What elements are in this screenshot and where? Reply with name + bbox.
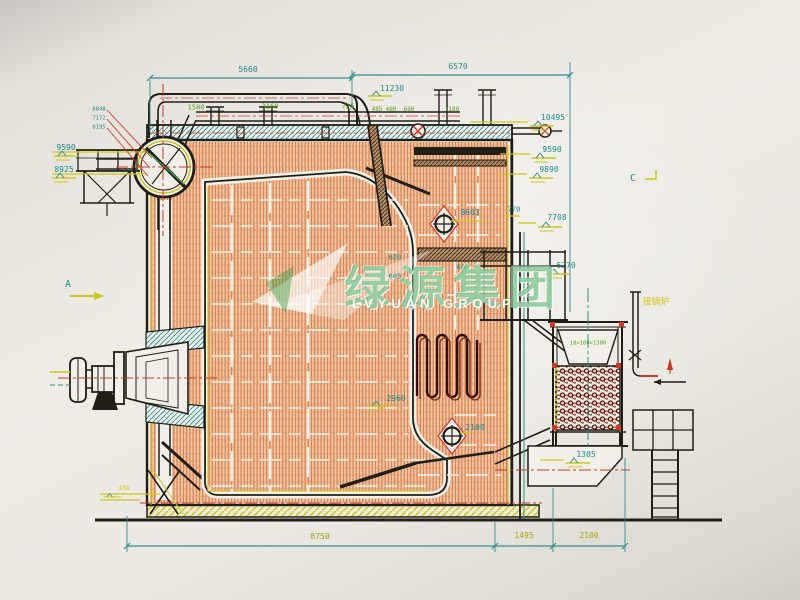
dim-725: 725 <box>342 104 355 111</box>
elev-10495: 10495 <box>541 114 565 122</box>
spec-3: 8195 <box>92 125 105 131</box>
elev-9590-right: 9590 <box>542 146 561 154</box>
elev-438: 438 <box>119 486 130 492</box>
note-chinese: 接锅炉 <box>642 299 669 308</box>
dim-5660: 5660 <box>238 66 257 74</box>
elev-7708: 7708 <box>547 214 566 222</box>
dim-485: 485 <box>372 107 383 113</box>
dim-680: 680 <box>404 107 415 113</box>
dim-1495: 1495 <box>514 532 533 540</box>
dim-480: 480 <box>386 107 397 113</box>
watermark-english: LVYUAN GROUP <box>352 296 516 311</box>
elev-9590-left: 9590 <box>56 144 75 152</box>
dim-1580: 1580 <box>188 105 205 112</box>
elev-8925: 8925 <box>54 166 73 174</box>
dim-6570: 6570 <box>448 63 467 71</box>
spec-hopper: 18×100×1300 <box>570 341 606 347</box>
elev-1305: 1305 <box>576 451 595 459</box>
dim-770: 770 <box>508 207 521 214</box>
section-a: A <box>65 280 71 290</box>
elev-8603: 8603 <box>460 209 479 217</box>
spec-2: 7172 <box>92 116 105 122</box>
elev-2100-target: 2100 <box>465 424 484 432</box>
spec-1: 8848 <box>92 107 105 113</box>
dim-1180: 1180 <box>445 107 459 113</box>
dim-8750: 8750 <box>310 533 329 541</box>
drawing-photo: 5660657011230158031607254854806801180104… <box>0 0 800 600</box>
section-c: C <box>630 174 636 184</box>
dim-2100-bottom: 2100 <box>579 532 598 540</box>
dim-3160: 3160 <box>262 104 279 111</box>
elev-11230: 11230 <box>380 85 404 93</box>
elev-2960: 2960 <box>386 395 405 403</box>
elev-9890: 9890 <box>539 166 558 174</box>
